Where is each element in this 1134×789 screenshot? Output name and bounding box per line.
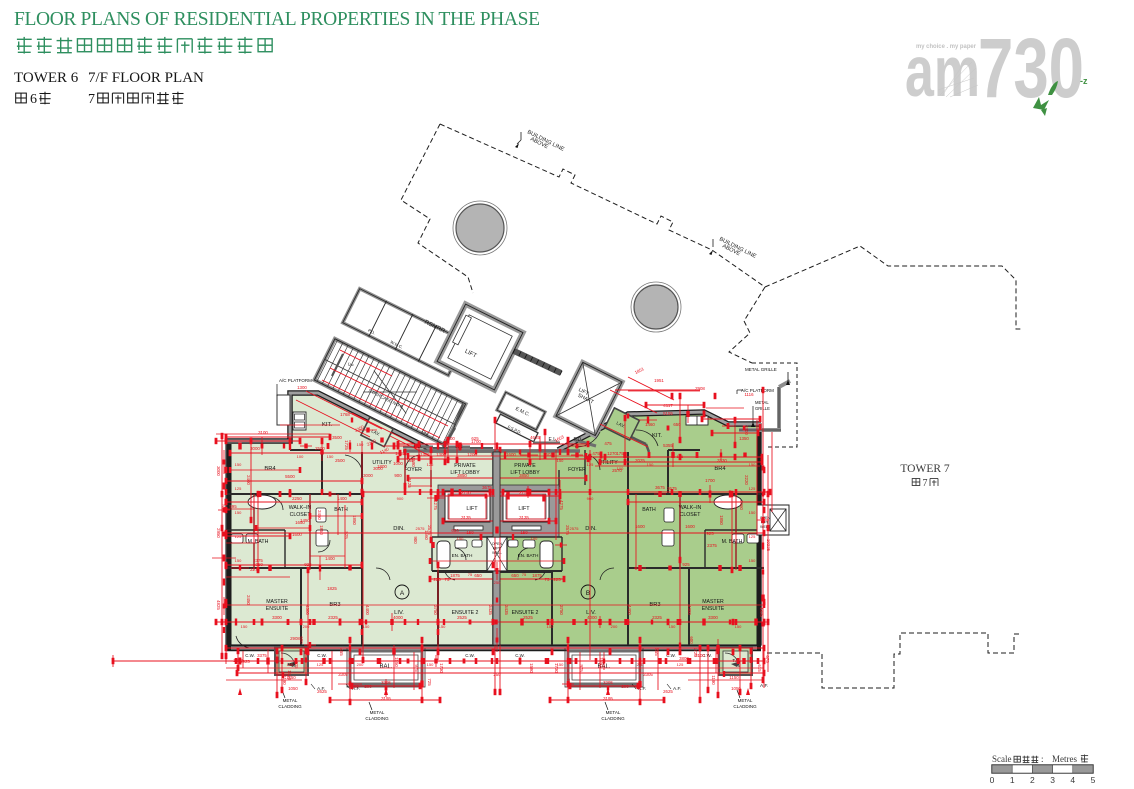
svg-text:4000: 4000 xyxy=(587,615,597,620)
svg-text:2750: 2750 xyxy=(461,490,471,495)
svg-text:4400: 4400 xyxy=(365,605,370,615)
svg-text:900: 900 xyxy=(413,536,418,544)
svg-text:2950: 2950 xyxy=(216,528,221,538)
svg-text:475: 475 xyxy=(592,451,600,456)
svg-text:150: 150 xyxy=(357,442,364,447)
svg-text:5355: 5355 xyxy=(663,443,673,448)
svg-text:3000: 3000 xyxy=(216,466,221,476)
svg-text:1700: 1700 xyxy=(705,478,715,483)
svg-text:2250: 2250 xyxy=(292,496,302,501)
svg-text:900: 900 xyxy=(397,496,404,501)
svg-text:150: 150 xyxy=(669,624,676,629)
svg-text:3750: 3750 xyxy=(433,605,438,615)
svg-text:METAL: METAL xyxy=(755,400,769,405)
svg-text:125: 125 xyxy=(317,662,324,667)
svg-text:3100: 3100 xyxy=(695,653,705,658)
svg-text:2525: 2525 xyxy=(523,615,533,620)
svg-text:150: 150 xyxy=(363,624,370,629)
svg-text:650: 650 xyxy=(474,573,482,578)
svg-text:2575: 2575 xyxy=(416,526,426,531)
svg-text:150: 150 xyxy=(531,536,538,541)
svg-text:625: 625 xyxy=(471,436,479,441)
svg-text:DIN.: DIN. xyxy=(585,526,597,532)
svg-text:3: 3 xyxy=(1050,775,1055,785)
svg-text:2220: 2220 xyxy=(744,475,749,485)
svg-text:A: A xyxy=(400,590,405,597)
svg-text:LIFT: LIFT xyxy=(466,506,478,512)
svg-text:WALK–IN: WALK–IN xyxy=(289,505,312,511)
svg-text:75: 75 xyxy=(468,572,473,577)
svg-text:1460: 1460 xyxy=(645,422,655,427)
svg-text:7: 7 xyxy=(923,478,928,489)
svg-text:BATH: BATH xyxy=(642,507,656,513)
svg-text:100: 100 xyxy=(617,466,624,471)
svg-text:METAL: METAL xyxy=(370,710,385,715)
svg-text:5: 5 xyxy=(1091,775,1096,785)
svg-text:1725: 1725 xyxy=(344,440,349,450)
svg-text:2400: 2400 xyxy=(246,475,251,485)
svg-text:3675: 3675 xyxy=(482,485,492,490)
svg-text:100: 100 xyxy=(297,454,304,459)
svg-text:200: 200 xyxy=(303,624,310,629)
svg-text:150: 150 xyxy=(520,530,528,535)
svg-text:C.W.: C.W. xyxy=(317,653,327,658)
svg-text:LIFT: LIFT xyxy=(518,506,530,512)
svg-text:595: 595 xyxy=(229,504,237,509)
svg-text:2908: 2908 xyxy=(695,386,705,391)
svg-text:DIN.: DIN. xyxy=(393,526,405,532)
svg-text:150: 150 xyxy=(466,530,474,535)
svg-text:1400: 1400 xyxy=(325,556,335,561)
svg-text:FOYER: FOYER xyxy=(568,467,586,473)
svg-text:am: am xyxy=(905,33,980,112)
svg-text:3195: 3195 xyxy=(603,696,613,701)
svg-text:4300: 4300 xyxy=(687,605,692,615)
svg-text:2: 2 xyxy=(1030,775,1035,785)
svg-text:150: 150 xyxy=(287,662,294,667)
svg-text:3000: 3000 xyxy=(363,473,373,478)
svg-text:150: 150 xyxy=(735,624,742,629)
svg-text:METAL: METAL xyxy=(738,698,753,703)
svg-text:CLADDING: CLADDING xyxy=(365,716,389,721)
svg-text:1150: 1150 xyxy=(729,675,739,680)
svg-text:BATH: BATH xyxy=(334,507,348,513)
svg-text:150: 150 xyxy=(749,462,756,467)
svg-text:3500: 3500 xyxy=(332,435,342,440)
svg-text:1600: 1600 xyxy=(635,524,645,529)
svg-text:1116: 1116 xyxy=(744,392,754,397)
svg-text:1875: 1875 xyxy=(532,573,542,578)
svg-text:P.D.: P.D. xyxy=(573,437,582,443)
svg-text:2575: 2575 xyxy=(570,526,580,531)
svg-text:3330: 3330 xyxy=(717,458,727,463)
svg-text:1600: 1600 xyxy=(685,524,695,529)
svg-text:6: 6 xyxy=(30,92,37,107)
svg-text:1660: 1660 xyxy=(424,530,429,540)
svg-text:CLADDING: CLADDING xyxy=(601,716,625,721)
svg-text:1125: 1125 xyxy=(407,478,412,488)
svg-text:150: 150 xyxy=(235,558,242,563)
svg-text:3300: 3300 xyxy=(272,615,282,620)
svg-text:7/F FLOOR PLAN: 7/F FLOOR PLAN xyxy=(88,70,204,86)
svg-text:CLADDING: CLADDING xyxy=(278,704,302,709)
svg-text:METAL: METAL xyxy=(283,698,298,703)
svg-text:3850: 3850 xyxy=(457,473,467,478)
svg-text:TOWER 7: TOWER 7 xyxy=(900,463,950,475)
svg-text:7: 7 xyxy=(88,92,95,107)
svg-text:2300: 2300 xyxy=(445,436,455,441)
svg-text:1650: 1650 xyxy=(295,520,305,525)
svg-text:75: 75 xyxy=(545,577,550,582)
svg-text:1600: 1600 xyxy=(292,532,302,537)
svg-text:2500: 2500 xyxy=(335,458,345,463)
svg-text:150: 150 xyxy=(457,536,464,541)
svg-text:3295: 3295 xyxy=(603,680,613,685)
svg-text:1400: 1400 xyxy=(337,496,347,501)
svg-text:MASTER: MASTER xyxy=(702,599,724,605)
svg-text:150: 150 xyxy=(749,510,756,515)
svg-text:125: 125 xyxy=(677,454,684,459)
svg-text:2325: 2325 xyxy=(652,615,662,620)
svg-text:PRIVATE: PRIVATE xyxy=(514,463,536,469)
svg-text:4625: 4625 xyxy=(530,435,540,440)
svg-text:150: 150 xyxy=(427,662,434,667)
svg-text:650: 650 xyxy=(511,573,519,578)
svg-text:1825: 1825 xyxy=(327,586,337,591)
svg-text:B: B xyxy=(586,590,590,597)
svg-text:2276: 2276 xyxy=(250,567,260,572)
svg-text:150: 150 xyxy=(547,624,554,629)
svg-text:650: 650 xyxy=(451,528,459,533)
svg-text:675: 675 xyxy=(765,655,770,663)
svg-text:3435: 3435 xyxy=(488,605,493,615)
svg-text:600: 600 xyxy=(689,636,694,644)
svg-text:1550: 1550 xyxy=(394,657,399,667)
svg-text:150: 150 xyxy=(235,510,242,515)
svg-text:1000: 1000 xyxy=(393,461,403,466)
svg-text:3435: 3435 xyxy=(504,605,509,615)
svg-text:CLADDING: CLADDING xyxy=(733,704,757,709)
svg-text:-z: -z xyxy=(1080,76,1088,86)
svg-text:EN. BATH: EN. BATH xyxy=(452,553,473,558)
svg-text:400: 400 xyxy=(351,684,359,689)
svg-text:C.W.: C.W. xyxy=(515,653,525,658)
svg-text:1850: 1850 xyxy=(352,515,357,525)
svg-text:150: 150 xyxy=(557,662,564,667)
svg-text:1768: 1768 xyxy=(340,412,350,417)
svg-text:3305: 3305 xyxy=(643,672,653,677)
svg-text:150: 150 xyxy=(327,454,334,459)
svg-text:1300: 1300 xyxy=(297,385,307,390)
svg-text:FOYER: FOYER xyxy=(404,467,422,473)
svg-text:2325: 2325 xyxy=(328,615,338,620)
svg-text:A/C PLATFORM: A/C PLATFORM xyxy=(279,378,312,383)
svg-text:150: 150 xyxy=(647,462,654,467)
svg-text:125: 125 xyxy=(587,462,594,467)
svg-text:4000: 4000 xyxy=(393,615,403,620)
svg-text:75: 75 xyxy=(445,577,450,582)
svg-text:150: 150 xyxy=(557,458,564,463)
svg-text:650: 650 xyxy=(673,422,681,427)
svg-text:150: 150 xyxy=(439,624,446,629)
svg-text:200: 200 xyxy=(611,624,618,629)
svg-text:125: 125 xyxy=(235,486,242,491)
svg-text:A.F.: A.F. xyxy=(673,686,681,692)
svg-text:3000: 3000 xyxy=(250,446,260,451)
svg-text:2025: 2025 xyxy=(635,458,645,463)
svg-text:BR4: BR4 xyxy=(264,466,276,472)
svg-text:2500: 2500 xyxy=(315,446,325,451)
svg-text:125: 125 xyxy=(235,534,242,539)
svg-text:4300: 4300 xyxy=(305,605,310,615)
svg-text:125: 125 xyxy=(677,662,684,667)
svg-text:1050: 1050 xyxy=(731,686,741,691)
svg-text:2450: 2450 xyxy=(317,510,322,520)
svg-text:925: 925 xyxy=(706,531,714,536)
svg-text:MASTER: MASTER xyxy=(266,599,288,605)
svg-text:1875: 1875 xyxy=(450,573,460,578)
svg-text:250: 250 xyxy=(494,580,501,585)
svg-text:725: 725 xyxy=(427,678,432,686)
svg-text:3675: 3675 xyxy=(655,485,665,490)
svg-text:225: 225 xyxy=(433,577,441,582)
svg-text:1050: 1050 xyxy=(288,686,298,691)
svg-text:200: 200 xyxy=(364,684,372,689)
svg-text:900: 900 xyxy=(394,473,402,478)
svg-text:1050: 1050 xyxy=(253,562,263,567)
svg-text:2375: 2375 xyxy=(707,543,717,548)
svg-text:250: 250 xyxy=(493,672,501,677)
svg-text:125: 125 xyxy=(749,534,756,539)
svg-text:455: 455 xyxy=(339,648,344,656)
svg-text:WALK–IN: WALK–IN xyxy=(679,505,702,511)
svg-text:2908: 2908 xyxy=(290,636,300,641)
svg-text:KIT.: KIT. xyxy=(652,433,662,439)
svg-text:EN. BATH: EN. BATH xyxy=(518,553,539,558)
svg-text:C.W.: C.W. xyxy=(245,653,255,658)
svg-text:730: 730 xyxy=(978,21,1084,115)
svg-text:ENSUITE: ENSUITE xyxy=(266,606,289,612)
svg-text:1: 1 xyxy=(1010,775,1015,785)
svg-text:5500: 5500 xyxy=(285,474,295,479)
svg-text:2625: 2625 xyxy=(317,689,327,694)
svg-text:150: 150 xyxy=(235,462,242,467)
svg-text:2450: 2450 xyxy=(246,595,251,605)
svg-text:10225: 10225 xyxy=(766,539,771,552)
svg-text:900: 900 xyxy=(587,496,594,501)
svg-text:150: 150 xyxy=(241,624,248,629)
svg-text:3750: 3750 xyxy=(559,605,564,615)
svg-text:1465: 1465 xyxy=(395,451,405,456)
svg-text:200: 200 xyxy=(621,684,629,689)
svg-text:Scale: Scale xyxy=(992,754,1012,764)
svg-text:1850: 1850 xyxy=(319,525,324,535)
svg-text:4275: 4275 xyxy=(433,500,438,510)
svg-text:METAL GRILLE: METAL GRILLE xyxy=(745,367,777,372)
svg-text:OPEN: OPEN xyxy=(492,542,503,546)
svg-text:4400: 4400 xyxy=(627,605,632,615)
svg-text:1800: 1800 xyxy=(377,464,387,469)
svg-text:4117: 4117 xyxy=(663,403,673,408)
svg-text:CLOSET: CLOSET xyxy=(680,512,702,518)
svg-text:3460: 3460 xyxy=(739,500,744,510)
svg-text:1850: 1850 xyxy=(719,515,724,525)
svg-text:3305: 3305 xyxy=(338,672,348,677)
svg-text:1600: 1600 xyxy=(233,658,243,663)
svg-text:3375: 3375 xyxy=(257,653,267,658)
svg-text:C.W.: C.W. xyxy=(465,653,475,658)
svg-text:2525: 2525 xyxy=(457,615,467,620)
svg-text:925: 925 xyxy=(304,562,312,567)
svg-text:BR4: BR4 xyxy=(714,466,726,472)
svg-text:Metres: Metres xyxy=(1052,754,1077,764)
svg-text:2625: 2625 xyxy=(663,689,673,694)
svg-text:BAL.: BAL. xyxy=(379,664,392,670)
svg-text:PRIVATE: PRIVATE xyxy=(454,463,476,469)
svg-text:125: 125 xyxy=(749,486,756,491)
svg-text:0: 0 xyxy=(990,775,995,785)
svg-text:ENSUITE: ENSUITE xyxy=(702,606,725,612)
svg-text:175: 175 xyxy=(616,451,624,456)
svg-text::: : xyxy=(1041,754,1044,764)
svg-text:4: 4 xyxy=(1070,775,1075,785)
svg-text:3300: 3300 xyxy=(708,615,718,620)
svg-text:1350: 1350 xyxy=(739,436,749,441)
svg-text:3850: 3850 xyxy=(519,473,529,478)
svg-text:200: 200 xyxy=(357,662,364,667)
svg-text:150: 150 xyxy=(749,558,756,563)
svg-text:METAL: METAL xyxy=(606,710,621,715)
svg-text:FLOOR PLANS OF RESIDENTIAL PRO: FLOOR PLANS OF RESIDENTIAL PROPERTIES IN… xyxy=(14,9,540,30)
svg-text:225: 225 xyxy=(553,577,561,582)
svg-text:75: 75 xyxy=(522,572,527,577)
svg-text:150: 150 xyxy=(407,458,414,463)
svg-text:475: 475 xyxy=(604,441,612,446)
svg-text:125: 125 xyxy=(427,462,434,467)
svg-text:1951: 1951 xyxy=(654,378,664,383)
svg-text:200: 200 xyxy=(637,662,644,667)
svg-text:4825: 4825 xyxy=(759,607,764,617)
svg-text:4825: 4825 xyxy=(216,600,221,610)
svg-text:TOWER 6: TOWER 6 xyxy=(14,70,79,86)
svg-text:5155: 5155 xyxy=(663,411,673,416)
svg-text:925: 925 xyxy=(682,562,690,567)
